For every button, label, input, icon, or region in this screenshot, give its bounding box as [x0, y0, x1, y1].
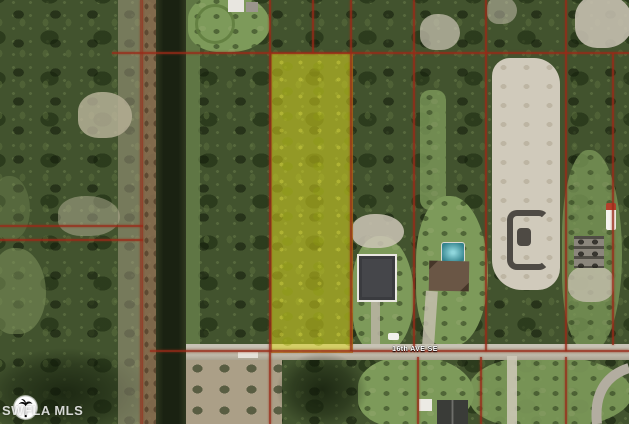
highlighted-parcel	[271, 53, 353, 353]
sand-patch	[352, 214, 404, 248]
sand-patch	[487, 0, 517, 24]
dirt-path	[118, 0, 142, 424]
house-with-pool	[429, 261, 470, 292]
curving-driveway	[580, 358, 629, 424]
ground-mark	[517, 228, 531, 246]
parcel-line-h-top	[112, 52, 629, 54]
parcel-line-v-4b	[417, 357, 419, 424]
parcel-line-v-4	[413, 0, 415, 351]
parcel-line-v-canal	[140, 0, 143, 424]
drainage-canal	[156, 0, 186, 424]
parcel-line-v-5	[485, 0, 487, 351]
outbuilding-roof	[228, 0, 244, 12]
parcel-line-v-6b	[565, 357, 567, 424]
marsh-grass	[0, 248, 46, 334]
outbuilding-roof	[246, 2, 258, 12]
sand-yard	[568, 266, 614, 302]
mowed-lane	[420, 90, 446, 210]
white-shed	[419, 399, 432, 411]
parcel-line-v-6	[565, 0, 567, 351]
house-east	[574, 236, 604, 268]
footpath	[507, 356, 517, 424]
parked-car	[388, 333, 399, 340]
parcel-line-v-1	[269, 0, 271, 424]
dense-trees	[276, 352, 368, 424]
driveway-apron	[238, 352, 258, 358]
canal-berm	[142, 0, 156, 424]
sand-patch	[420, 14, 460, 50]
parked-truck	[606, 203, 616, 230]
sand-patch	[575, 0, 629, 48]
parcel-line-h-left-2	[0, 239, 143, 241]
road-label: 16th AVE SE	[384, 346, 446, 353]
marsh-grass	[0, 176, 30, 240]
parcel-line-v-2	[312, 0, 314, 53]
parcel-line-v-3	[350, 0, 352, 351]
parcel-line-h-left-1	[0, 225, 143, 227]
sand-patch	[58, 196, 120, 236]
aerial-map-photo[interactable]: 16th AVE SE SWFLA MLS	[0, 0, 629, 424]
driveway	[371, 297, 380, 345]
cleared-scrub	[184, 358, 282, 424]
parcel-line-v-7	[612, 53, 614, 345]
parcel-line-v-5b	[480, 357, 482, 424]
house-dark-roof	[357, 254, 397, 302]
house-south	[437, 400, 468, 424]
watermark-text: SWFLA MLS	[2, 403, 83, 418]
swimming-pool	[441, 242, 465, 263]
